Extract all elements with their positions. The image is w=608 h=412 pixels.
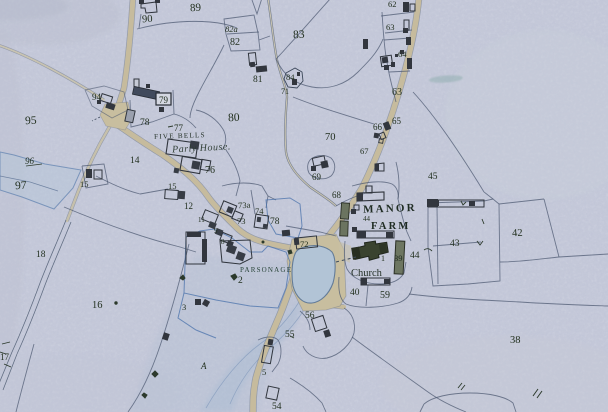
svg-text:15: 15	[168, 181, 177, 191]
svg-text:55: 55	[285, 330, 295, 340]
svg-text:79: 79	[159, 95, 169, 105]
svg-text:15: 15	[80, 179, 89, 189]
svg-text:PARSONAGE: PARSONAGE	[240, 266, 292, 274]
svg-text:73: 73	[237, 216, 246, 226]
svg-text:81: 81	[253, 75, 263, 85]
svg-text:38: 38	[510, 335, 521, 346]
svg-text:MANOR: MANOR	[363, 202, 417, 216]
svg-text:43: 43	[450, 239, 460, 249]
svg-text:84: 84	[286, 72, 295, 82]
svg-text:95: 95	[25, 115, 37, 128]
svg-text:54: 54	[272, 402, 282, 412]
svg-text:70: 70	[325, 132, 336, 143]
svg-text:63: 63	[386, 22, 395, 32]
svg-text:12: 12	[184, 201, 193, 211]
svg-text:63: 63	[392, 87, 402, 98]
svg-text:66: 66	[373, 122, 383, 132]
svg-text:2: 2	[238, 276, 243, 286]
svg-text:72: 72	[300, 239, 309, 249]
svg-text:90: 90	[142, 14, 153, 26]
svg-text:14: 14	[130, 156, 140, 166]
svg-text:FARM: FARM	[371, 221, 411, 232]
svg-text:5: 5	[262, 367, 266, 377]
svg-text:74: 74	[255, 206, 264, 216]
svg-text:69: 69	[312, 172, 322, 182]
svg-text:62: 62	[388, 0, 397, 9]
svg-text:82: 82	[230, 37, 240, 48]
svg-text:76: 76	[205, 165, 215, 176]
svg-text:78: 78	[140, 118, 150, 128]
svg-text:56: 56	[305, 311, 315, 321]
svg-text:78: 78	[270, 217, 280, 227]
svg-text:80: 80	[228, 112, 240, 125]
svg-text:9: 9	[214, 227, 218, 235]
svg-text:83: 83	[293, 29, 305, 42]
svg-text:8: 8	[221, 238, 225, 246]
svg-text:45: 45	[428, 172, 438, 182]
svg-text:16: 16	[92, 300, 103, 311]
svg-text:42: 42	[512, 228, 523, 240]
svg-text:1: 1	[381, 254, 385, 263]
svg-text:39: 39	[394, 253, 403, 263]
svg-text:71: 71	[281, 87, 289, 96]
svg-text:11: 11	[198, 216, 205, 224]
svg-text:97: 97	[15, 180, 27, 193]
svg-text:44: 44	[410, 251, 420, 261]
svg-text:Church: Church	[351, 268, 383, 279]
svg-text:82a: 82a	[225, 24, 238, 34]
svg-text:94: 94	[92, 92, 102, 102]
svg-text:68: 68	[332, 190, 342, 200]
svg-text:64: 64	[398, 49, 407, 59]
svg-text:65: 65	[392, 116, 402, 126]
svg-text:A: A	[200, 361, 207, 371]
svg-text:59: 59	[380, 290, 390, 301]
svg-text:73a: 73a	[238, 200, 251, 211]
svg-text:44: 44	[363, 215, 371, 223]
svg-text:96: 96	[25, 156, 35, 166]
svg-text:3: 3	[182, 302, 186, 312]
svg-text:17: 17	[0, 352, 10, 362]
svg-text:89: 89	[190, 2, 202, 15]
svg-text:40: 40	[350, 288, 360, 298]
svg-text:67: 67	[360, 146, 369, 156]
svg-text:18: 18	[36, 250, 46, 260]
